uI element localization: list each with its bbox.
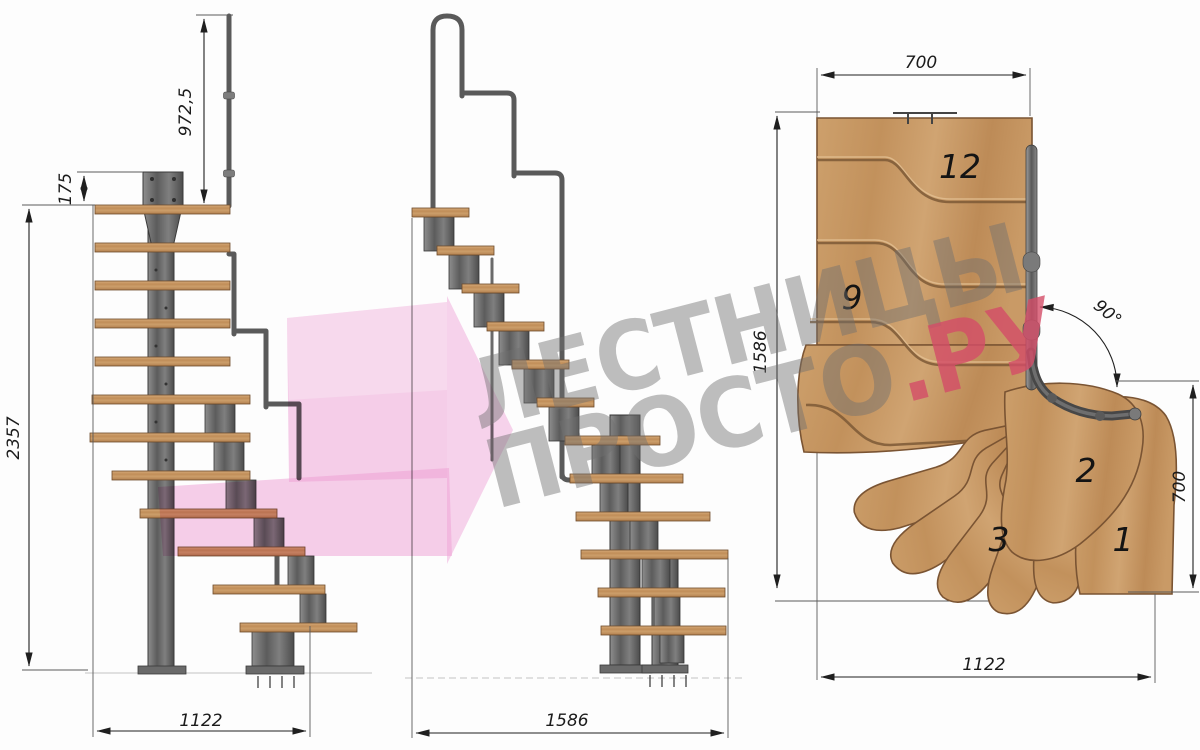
tread — [581, 550, 728, 559]
rail-joint — [224, 92, 235, 99]
arrow-wing — [158, 468, 452, 556]
tread — [462, 284, 519, 293]
dim-label-handrail-height: 972,5 — [176, 88, 196, 137]
mounting-plate — [143, 172, 183, 207]
base-plate — [642, 665, 688, 673]
tread — [240, 623, 357, 632]
arrow-facet — [287, 302, 447, 400]
tread — [112, 471, 250, 480]
step-number-2: 2 — [1076, 451, 1097, 490]
tread — [598, 588, 725, 597]
rail-joint — [1023, 252, 1040, 272]
tread — [412, 208, 469, 217]
base-plate — [138, 666, 186, 674]
dim-label-total-height: 2357 — [4, 416, 24, 459]
tread — [601, 626, 726, 635]
angle-label: 90° — [1089, 296, 1125, 331]
dim-label-top-width: 700 — [905, 53, 937, 73]
rail-joint — [224, 170, 235, 177]
bottom-support — [252, 630, 294, 666]
tread — [92, 395, 250, 404]
tread — [213, 585, 325, 594]
dim-label-length: 1586 — [545, 711, 588, 731]
tread — [95, 357, 230, 366]
anchor-bolts — [650, 675, 686, 687]
step-module — [660, 635, 684, 663]
dim-label-bottom-width: 1122 — [962, 655, 1005, 675]
step-number-1: 1 — [1113, 520, 1134, 559]
staircase-technical-drawing: 972,5 175 2357 1122 — [0, 0, 1200, 750]
tread — [95, 205, 230, 214]
rail-joint — [1095, 411, 1105, 421]
dim-label-right-depth: 700 — [1170, 471, 1190, 503]
rail-end-cap — [1129, 408, 1141, 420]
tread — [95, 281, 230, 290]
dim-label-width: 1122 — [179, 711, 222, 731]
step-number-12: 12 — [939, 147, 981, 186]
drawing-canvas: 972,5 175 2357 1122 — [0, 0, 1200, 750]
rail-joint — [1047, 393, 1057, 403]
tread — [95, 319, 230, 328]
tread — [576, 512, 710, 521]
dim-label-plate-height: 175 — [56, 173, 76, 205]
tread — [95, 243, 230, 252]
anchor-bolts — [258, 676, 294, 688]
step-number-3: 3 — [989, 520, 1010, 559]
tread — [437, 246, 494, 255]
tread — [90, 433, 250, 442]
base-plate — [246, 666, 304, 674]
